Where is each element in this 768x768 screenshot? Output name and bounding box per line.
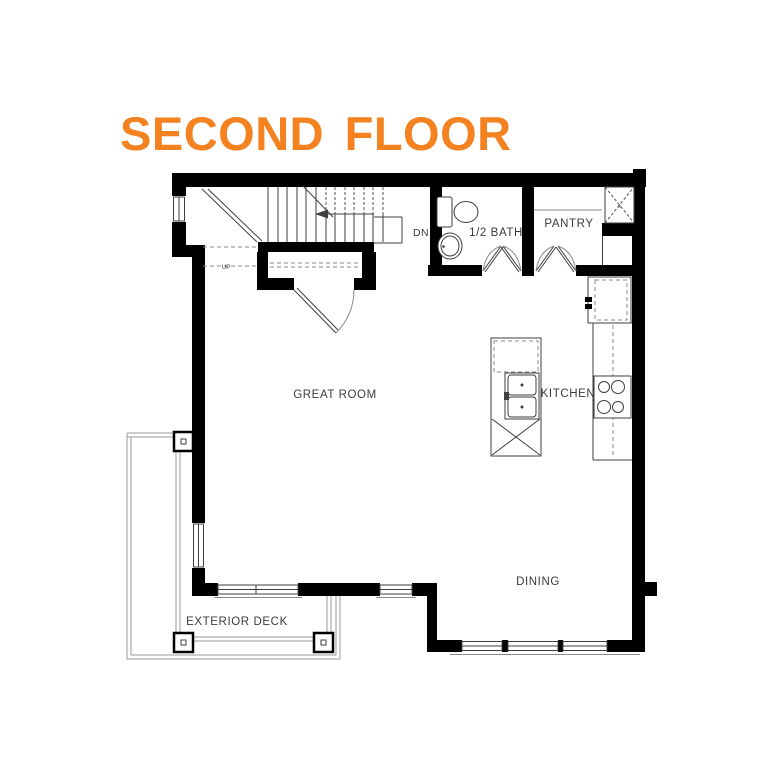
stair-arrow-icon: [315, 210, 328, 219]
chase-x-label: x: [618, 204, 621, 210]
room-label-kitchen: KITCHEN: [541, 388, 596, 400]
dishwasher-icon: [492, 419, 540, 455]
stairs-down-label: DN: [413, 227, 429, 239]
kitchen-island: [491, 338, 541, 456]
kitchen-features: [491, 277, 632, 460]
room-label-dining: DINING: [516, 576, 560, 588]
room-label-exterior-deck: EXTERIOR DECK: [186, 616, 288, 628]
room-label-half-bath: 1/2 BATH: [469, 227, 523, 239]
mechanical-chase-icon: x: [605, 187, 634, 223]
room-label-pantry: PANTRY: [544, 218, 593, 230]
deck-post-icon: [314, 633, 333, 652]
stairs-up-label: UP: [222, 265, 230, 271]
bath-door-icon: [483, 246, 521, 272]
floor-plan: SECOND FLOOR: [0, 0, 768, 768]
sink-icon: [438, 233, 462, 259]
page-title: SECOND FLOOR: [120, 107, 512, 160]
deck-post-icon: [174, 432, 193, 451]
refrigerator-icon: [585, 277, 631, 323]
cooktop-icon: [594, 376, 631, 418]
walls: [172, 169, 657, 652]
island-sink-icon: [504, 373, 539, 419]
room-label-great-room: GREAT ROOM: [293, 389, 377, 401]
deck-post-icon: [174, 633, 193, 652]
pantry-door-icon: [536, 246, 576, 272]
toilet-icon: [437, 197, 478, 227]
